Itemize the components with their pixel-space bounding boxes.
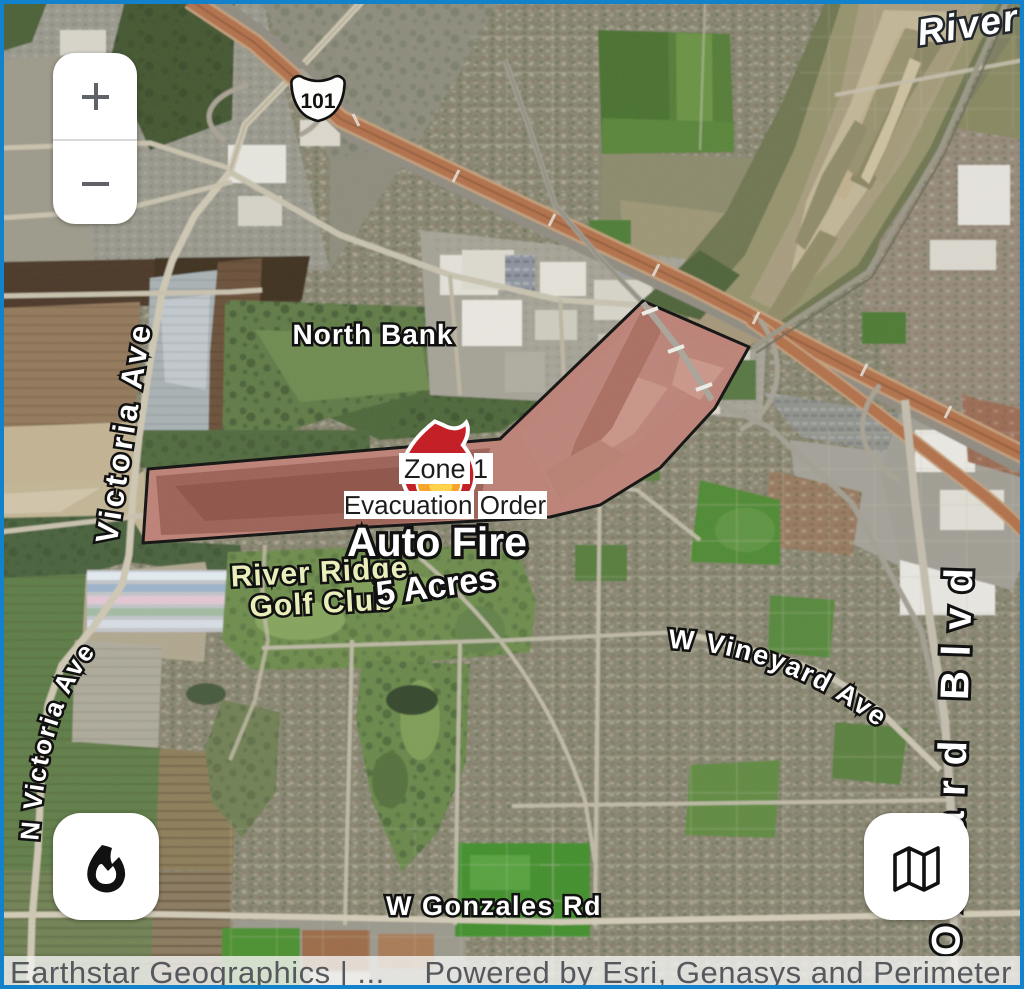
svg-text:North Bank: North Bank: [293, 319, 454, 350]
svg-text:101: 101: [300, 90, 335, 113]
svg-text:Zone 1: Zone 1: [404, 454, 488, 484]
svg-text:Auto Fire: Auto Fire: [347, 519, 527, 565]
svg-text:Evacuation Order: Evacuation Order: [344, 490, 547, 520]
svg-text:W Gonzales Rd: W Gonzales Rd: [386, 891, 602, 921]
